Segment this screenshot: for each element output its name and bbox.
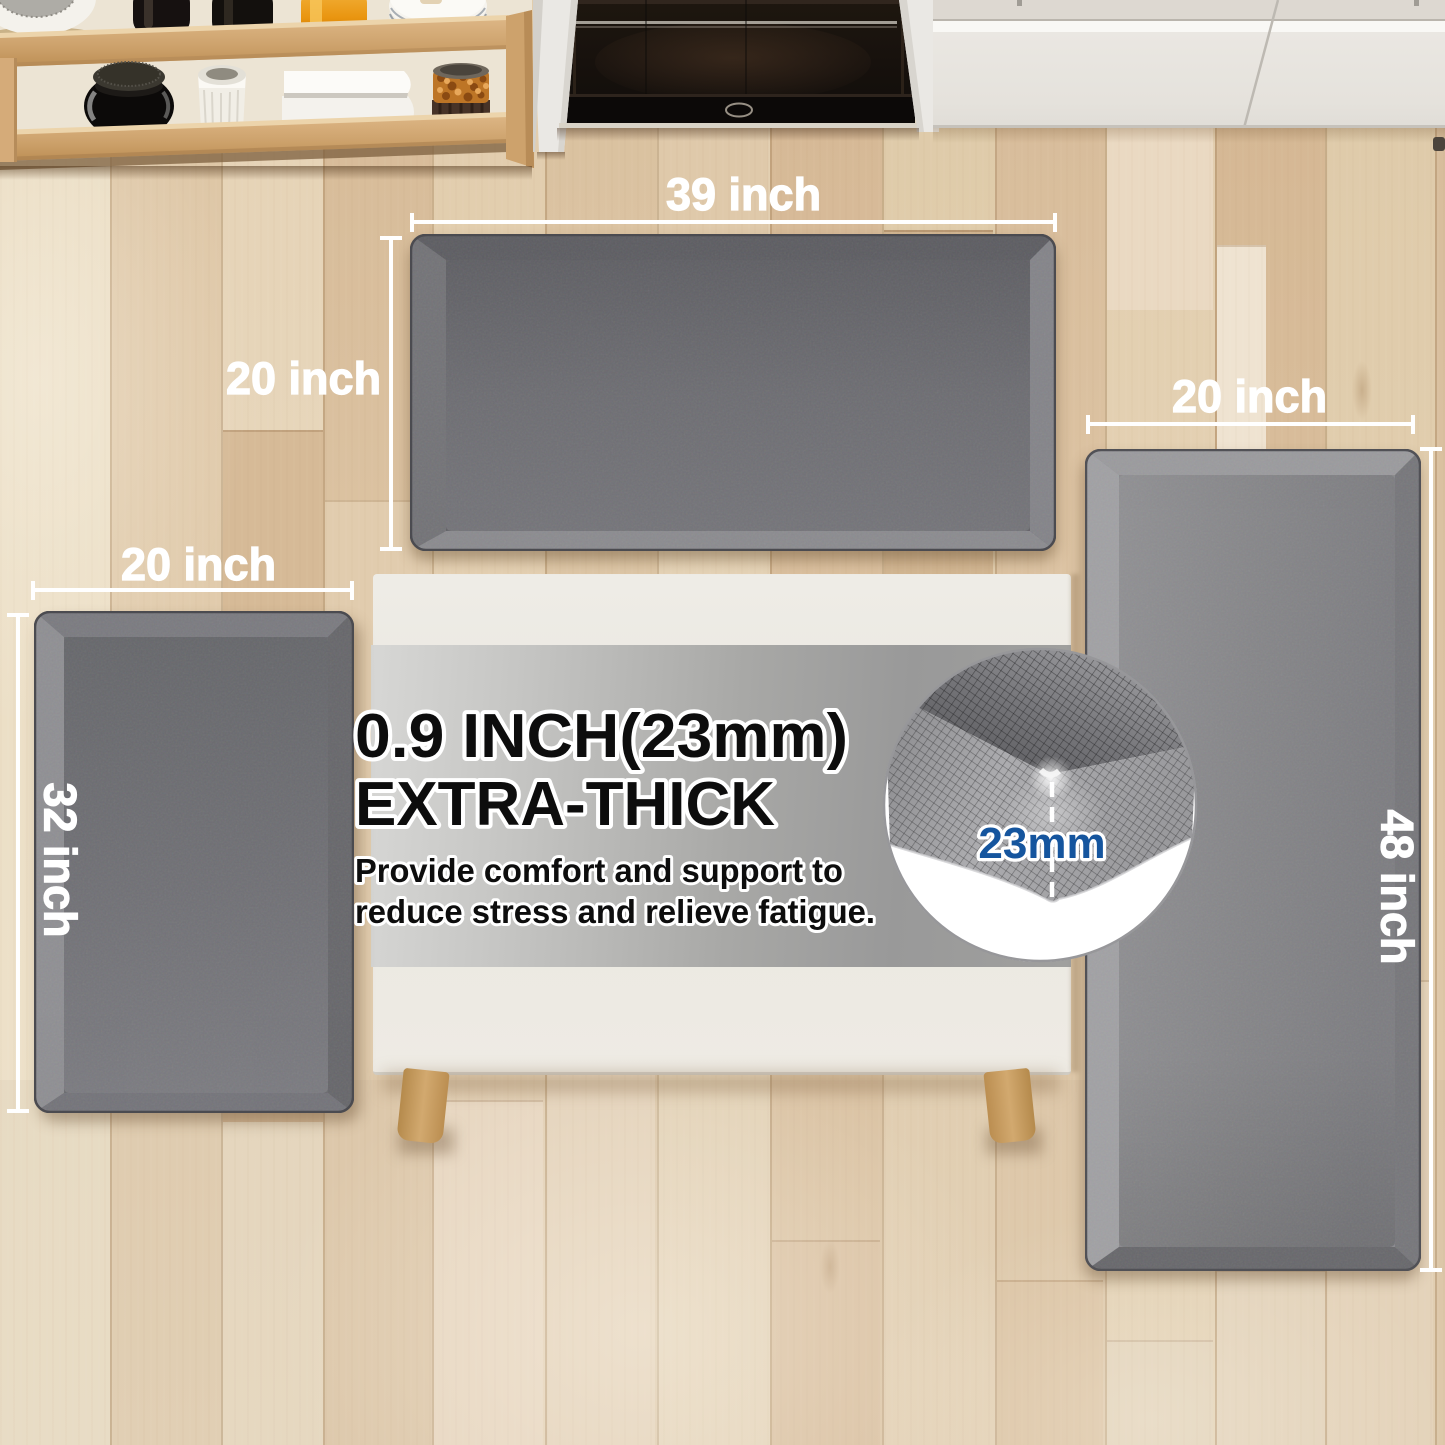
- svg-text:reduce stress and relieve fati: reduce stress and relieve fatigue.: [355, 893, 875, 930]
- svg-text:0.9 INCH(23mm): 0.9 INCH(23mm): [355, 702, 848, 771]
- svg-text:Provide comfort and support to: Provide comfort and support to: [355, 852, 843, 889]
- svg-text:EXTRA-THICK: EXTRA-THICK: [355, 770, 775, 839]
- svg-text:23mm: 23mm: [978, 819, 1105, 868]
